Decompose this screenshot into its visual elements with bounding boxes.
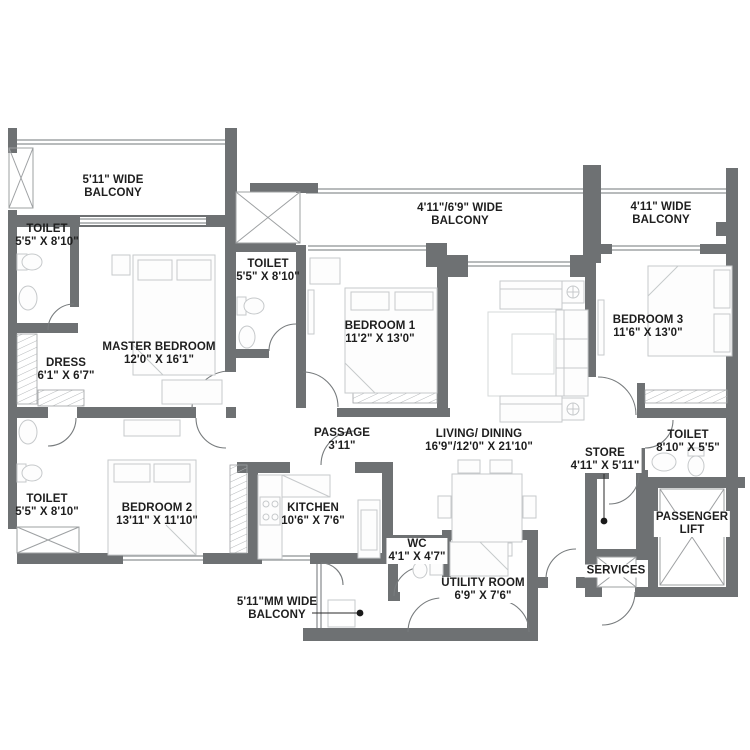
label-kitchen: KITCHEN 10'6" X 7'6": [281, 502, 345, 528]
label-bedroom1: BEDROOM 1 11'2" X 13'0": [345, 320, 416, 346]
label-dress: DRESS 6'1" X 6'7": [37, 357, 94, 383]
label-balcony-bottom: 5'11"MM WIDE BALCONY: [237, 596, 317, 622]
label-store: STORE 4'11" X 5'11": [569, 447, 642, 473]
floor-plan-drawing: [0, 0, 750, 750]
label-toilet-master: TOILET 5'5" X 8'10": [15, 223, 79, 249]
label-wc: WC 4'1" X 4'7": [386, 538, 447, 564]
label-toilet-right: TOILET 8'10" X 5'5": [656, 429, 720, 455]
label-passenger-lift: PASSENGER LIFT: [654, 511, 730, 537]
label-passage: PASSAGE 3'11": [314, 427, 370, 453]
label-services: SERVICES: [585, 565, 648, 578]
label-toilet-left: TOILET 5'5" X 8'10": [15, 493, 79, 519]
label-living-dining: LIVING/ DINING 16'9"/12'0" X 21'10": [425, 428, 533, 454]
label-balcony-master: 5'11" WIDE BALCONY: [83, 174, 144, 200]
label-bedroom3: BEDROOM 3 11'6" X 13'0": [613, 314, 684, 340]
floor-plan: 5'11" WIDE BALCONY TOILET 5'5" X 8'10" M…: [0, 0, 750, 750]
label-balcony-mid: 4'11"/6'9" WIDE BALCONY: [417, 202, 503, 228]
label-master-bedroom: MASTER BEDROOM 12'0" X 16'1": [102, 341, 215, 367]
label-bedroom2: BEDROOM 2 13'11" X 11'10": [116, 502, 198, 528]
label-toilet-mid: TOILET 5'5" X 8'10": [236, 258, 300, 284]
label-balcony-right: 4'11" WIDE BALCONY: [631, 201, 692, 227]
label-utility-room: UTILITY ROOM 6'9" X 7'6": [439, 577, 526, 603]
